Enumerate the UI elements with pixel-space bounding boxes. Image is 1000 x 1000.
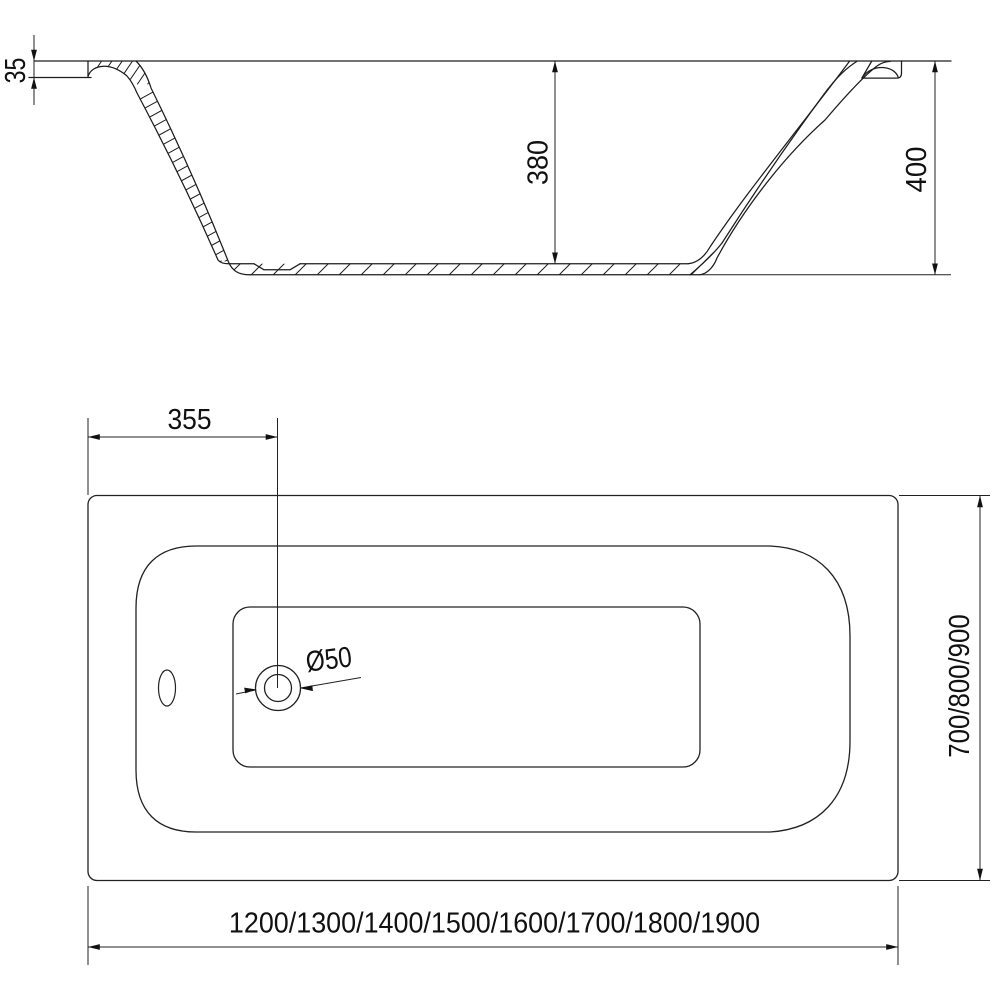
svg-text:1200/1300/1400/1500/1600/1700/: 1200/1300/1400/1500/1600/1700/1800/1900	[229, 907, 760, 939]
svg-text:700/800/900: 700/800/900	[943, 614, 976, 757]
svg-text:35: 35	[0, 58, 32, 84]
svg-text:Ø50: Ø50	[304, 640, 354, 678]
svg-text:380: 380	[522, 140, 554, 185]
svg-text:355: 355	[167, 403, 211, 435]
svg-text:400: 400	[899, 147, 932, 193]
